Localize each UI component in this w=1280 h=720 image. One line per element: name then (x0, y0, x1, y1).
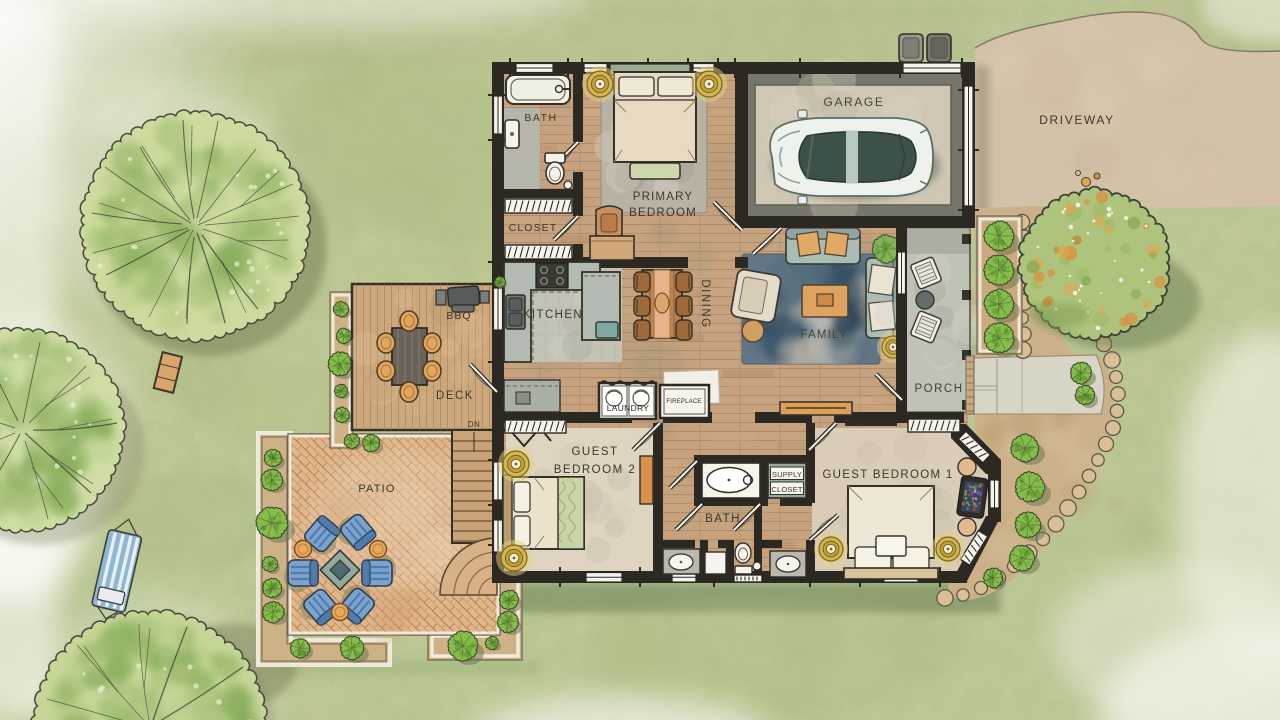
svg-text:SUPPLY: SUPPLY (772, 470, 802, 479)
svg-text:GUEST BEDROOM 1: GUEST BEDROOM 1 (822, 469, 953, 481)
svg-text:CLOSET: CLOSET (509, 222, 558, 234)
svg-text:BATH: BATH (705, 513, 741, 525)
svg-text:PRIMARY: PRIMARY (633, 191, 694, 203)
svg-text:BEDROOM 2: BEDROOM 2 (554, 464, 637, 476)
svg-text:KITCHEN: KITCHEN (523, 309, 583, 321)
svg-text:DRIVEWAY: DRIVEWAY (1039, 113, 1114, 127)
svg-text:DECK: DECK (436, 390, 474, 402)
svg-text:BEDROOM: BEDROOM (629, 207, 697, 219)
svg-text:CLOSET: CLOSET (771, 485, 802, 494)
svg-text:LAUNDRY: LAUNDRY (607, 403, 650, 413)
svg-text:FIREPLACE: FIREPLACE (666, 399, 701, 405)
svg-text:BATH: BATH (524, 112, 557, 124)
svg-text:PATIO: PATIO (358, 483, 395, 495)
svg-text:DN: DN (468, 420, 481, 429)
svg-text:GUEST: GUEST (571, 446, 618, 458)
svg-text:DINING: DINING (699, 279, 711, 328)
svg-text:BBQ: BBQ (446, 310, 471, 322)
